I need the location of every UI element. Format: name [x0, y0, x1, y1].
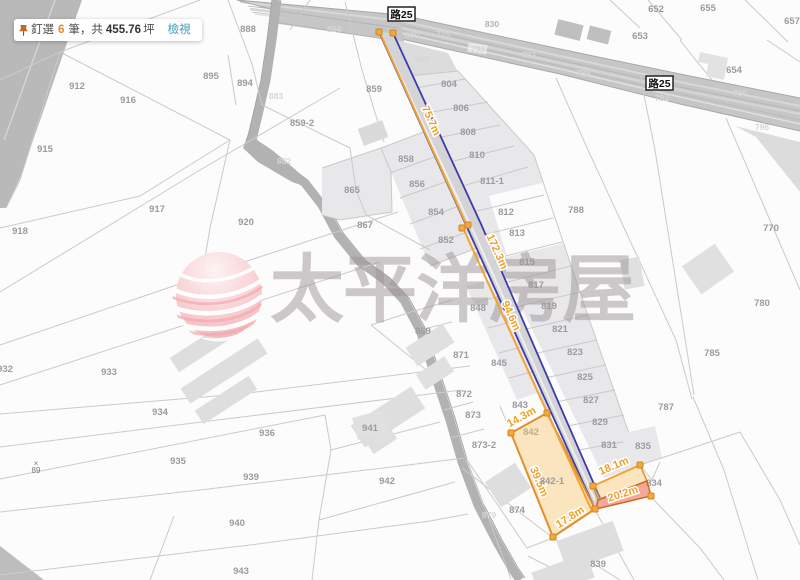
svg-text:933: 933	[101, 367, 117, 378]
svg-text:782: 782	[655, 93, 669, 103]
svg-text:825: 825	[577, 372, 594, 383]
svg-text:941: 941	[362, 423, 379, 434]
svg-text:657: 657	[784, 16, 800, 27]
svg-text:918: 918	[12, 226, 28, 237]
svg-text:940: 940	[229, 518, 245, 529]
svg-text:915: 915	[37, 144, 54, 155]
svg-text:894: 894	[237, 78, 254, 89]
svg-text:829: 829	[592, 417, 608, 428]
svg-text:太平洋房屋: 太平洋房屋	[270, 248, 635, 331]
svg-text:823: 823	[567, 347, 583, 358]
svg-text:783: 783	[522, 50, 536, 60]
svg-text:804: 804	[441, 79, 458, 90]
svg-text:654: 654	[726, 65, 743, 76]
svg-text:854: 854	[428, 207, 445, 218]
svg-text:916: 916	[120, 95, 136, 106]
svg-text:786: 786	[733, 88, 747, 98]
svg-text:806: 806	[453, 103, 469, 114]
svg-text:775: 775	[436, 29, 450, 39]
svg-text:798: 798	[471, 44, 485, 54]
svg-text:895: 895	[203, 71, 220, 82]
svg-text:872: 872	[456, 389, 472, 400]
svg-text:939: 939	[243, 472, 259, 483]
svg-text:932: 932	[0, 364, 13, 375]
svg-text:873: 873	[465, 410, 481, 421]
svg-text:653: 653	[632, 31, 648, 42]
svg-text:830: 830	[485, 19, 499, 29]
svg-text:845: 845	[491, 358, 508, 369]
svg-text:859: 859	[366, 84, 382, 95]
svg-text:871: 871	[453, 350, 470, 361]
svg-text:789: 789	[576, 68, 590, 78]
svg-text:859-2: 859-2	[290, 118, 314, 129]
svg-text:936: 936	[259, 428, 275, 439]
svg-text:89: 89	[32, 466, 41, 475]
svg-text:路25: 路25	[390, 8, 412, 21]
svg-text:917: 917	[149, 204, 165, 215]
svg-text:808: 808	[460, 127, 476, 138]
svg-text:883: 883	[269, 91, 283, 101]
svg-text:935: 935	[170, 456, 187, 467]
svg-text:879: 879	[482, 510, 496, 520]
svg-text:805: 805	[415, 54, 429, 64]
svg-text:785: 785	[704, 348, 721, 359]
svg-text:852: 852	[438, 235, 454, 246]
svg-text:858: 858	[398, 154, 414, 165]
svg-text:780: 780	[754, 298, 770, 309]
svg-text:867: 867	[357, 220, 373, 231]
svg-text:812: 812	[498, 207, 514, 218]
svg-text:831: 831	[601, 440, 618, 451]
svg-text:865: 865	[344, 185, 361, 196]
svg-text:934: 934	[152, 407, 169, 418]
svg-text:787: 787	[658, 402, 674, 413]
svg-text:942: 942	[379, 476, 395, 487]
svg-text:943: 943	[233, 566, 249, 577]
svg-text:882: 882	[277, 156, 291, 166]
svg-text:770: 770	[763, 223, 779, 234]
svg-text:835: 835	[635, 441, 652, 452]
svg-text:888: 888	[240, 24, 256, 35]
svg-text:788: 788	[568, 205, 584, 216]
svg-text:874: 874	[509, 505, 526, 516]
svg-text:655: 655	[700, 3, 717, 14]
svg-text:652: 652	[648, 4, 664, 15]
svg-text:856: 856	[409, 179, 425, 190]
svg-text:920: 920	[238, 217, 254, 228]
svg-text:827: 827	[583, 395, 599, 406]
svg-text:912: 912	[69, 81, 85, 92]
svg-text:810: 810	[469, 150, 485, 161]
svg-text:796: 796	[755, 122, 769, 132]
svg-text:813: 813	[509, 228, 525, 239]
svg-text:842-1: 842-1	[540, 476, 565, 487]
svg-text:839: 839	[590, 559, 606, 570]
svg-text:873-2: 873-2	[472, 440, 496, 451]
svg-text:854: 854	[327, 24, 341, 34]
svg-text:811-1: 811-1	[480, 176, 504, 187]
svg-text:800: 800	[405, 30, 419, 40]
svg-text:路25: 路25	[648, 77, 670, 90]
